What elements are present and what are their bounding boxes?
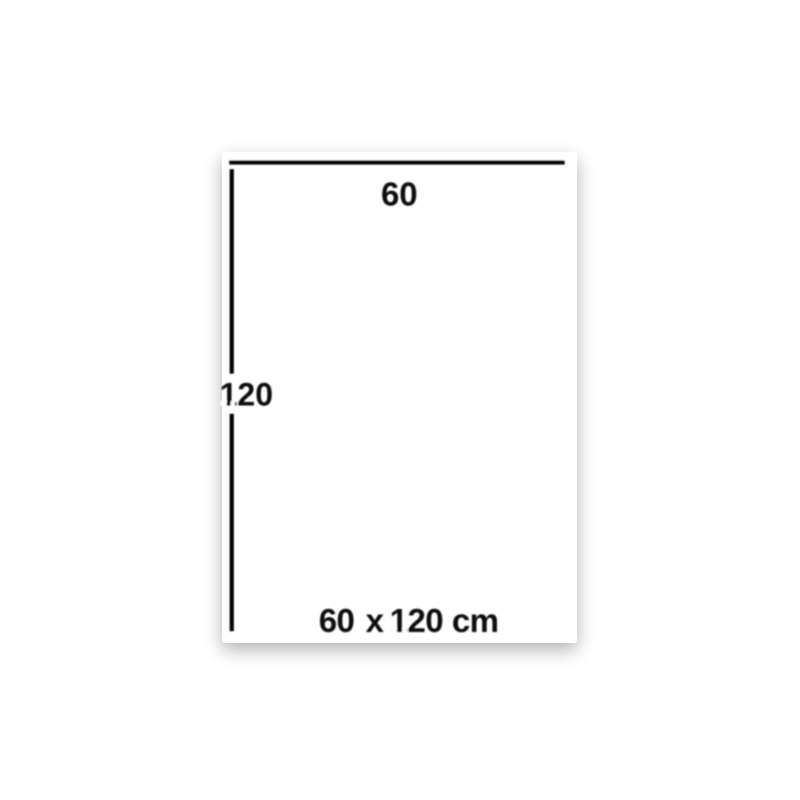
svg-text:60 x 120 cm: 60 x 120 cm: [319, 602, 499, 639]
svg-text:120: 120: [220, 376, 273, 412]
svg-text:60: 60: [381, 176, 418, 213]
